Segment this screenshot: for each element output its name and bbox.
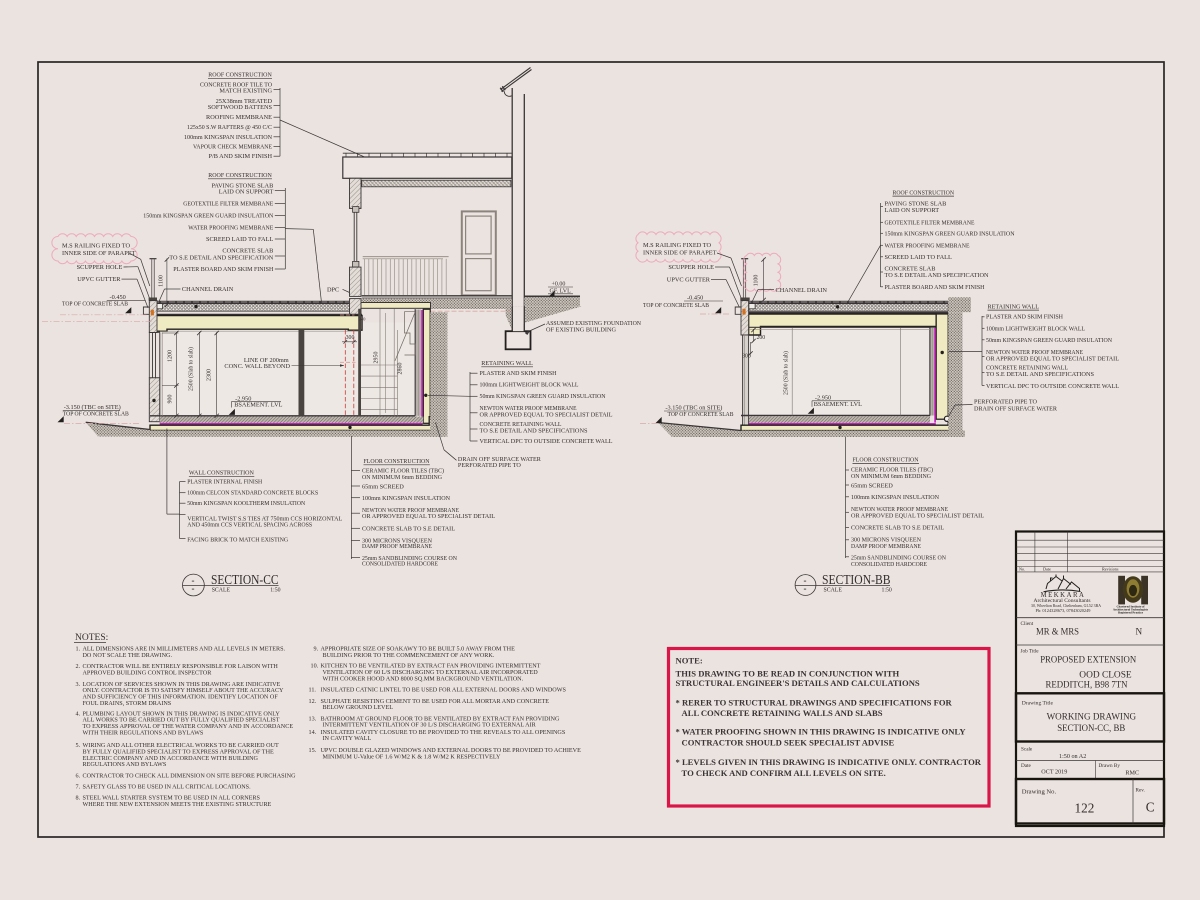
svg-text:ROOF CONSTRUCTION: ROOF CONSTRUCTION <box>893 189 955 196</box>
svg-text:CONCRETE SLAB: CONCRETE SLAB <box>222 248 273 255</box>
svg-text:2860: 2860 <box>398 363 404 375</box>
svg-text:TO CHECK AND CONFIRM ALL LEVEL: TO CHECK AND CONFIRM ALL LEVELS ON SITE. <box>682 768 886 778</box>
svg-text:Drawing No.: Drawing No. <box>1022 789 1057 796</box>
svg-text:RETAINING WALL: RETAINING WALL <box>481 360 533 367</box>
svg-text:1200: 1200 <box>168 350 174 362</box>
svg-text:100mm CELCON STANDARD CONCRETE: 100mm CELCON STANDARD CONCRETE BLOCKS <box>187 490 318 497</box>
svg-text:BUILDING PRIOR TO THE COMMENCE: BUILDING PRIOR TO THE COMMENCEMENT OF AN… <box>323 653 495 659</box>
svg-text:WALL CONSTRUCTION: WALL CONSTRUCTION <box>189 470 254 477</box>
svg-text:MEKKARA: MEKKARA <box>1041 592 1086 599</box>
svg-text:CONTRACTOR WILL BE ENTIRELY RE: CONTRACTOR WILL BE ENTIRELY RESPONSIBLE … <box>83 664 279 670</box>
svg-text:APPROVED BUILDING CONTROL INSP: APPROVED BUILDING CONTROL INSPECTOR <box>83 671 213 677</box>
svg-text:1:50: 1:50 <box>270 588 280 594</box>
svg-text:SAFETY GLASS TO BE USED IN ALL: SAFETY GLASS TO BE USED IN ALL CRITICAL … <box>83 784 252 790</box>
svg-text:OOD CLOSE: OOD CLOSE <box>1079 671 1132 681</box>
svg-text:CONCRETE SLAB TO S.E DETAIL: CONCRETE SLAB TO S.E DETAIL <box>851 525 944 532</box>
svg-text:GEOTEXTILE FILTER MEMBRANE: GEOTEXTILE FILTER MEMBRANE <box>885 219 975 226</box>
svg-text:TOP OF CONCRETE SLAB: TOP OF CONCRETE SLAB <box>63 410 129 417</box>
svg-text:2950: 2950 <box>374 352 380 364</box>
svg-text:RETAINING WALL: RETAINING WALL <box>988 303 1040 310</box>
svg-text:100mm LIGHTWEIGHT BLOCK WALL: 100mm LIGHTWEIGHT BLOCK WALL <box>986 325 1085 332</box>
svg-text:7.: 7. <box>76 784 81 790</box>
svg-text:100mm KINGSPAN INSULATION: 100mm KINGSPAN INSULATION <box>184 134 272 141</box>
svg-text:PLASTER AND SKIM FINISH: PLASTER AND SKIM FINISH <box>480 370 557 377</box>
svg-text:M.S RAILING FIXED TO: M.S RAILING FIXED TO <box>62 243 130 250</box>
svg-text:ON MINIMUM 6mm BEDDING: ON MINIMUM 6mm BEDDING <box>851 473 931 480</box>
svg-text:CONCRETE SLAB TO S.E DETAIL: CONCRETE SLAB TO S.E DETAIL <box>362 525 455 532</box>
svg-text:SCREED LAID TO FALL: SCREED LAID TO FALL <box>885 254 952 261</box>
svg-text:No.: No. <box>1019 566 1025 571</box>
svg-text:VENTILATION OF 60 L/S DISCHA: VENTILATION OF 60 L/S DISCHARGING TO EXT… <box>323 670 539 676</box>
svg-text:PLASTER BOARD AND SKIM FINISH: PLASTER BOARD AND SKIM FINISH <box>885 284 985 291</box>
svg-text:FLOOR CONSTRUCTION: FLOOR CONSTRUCTION <box>364 458 430 465</box>
svg-text:OR APPROVED EQUAL TO SPECIALIS: OR APPROVED EQUAL TO SPECIALIST DETAIL <box>851 513 984 520</box>
svg-text:CONTRACTOR TO CHECK ALL DIMENS: CONTRACTOR TO CHECK ALL DIMENSION ON SIT… <box>83 773 297 779</box>
svg-text:STEEL WALL STARTER SYSTEM TO B: STEEL WALL STARTER SYSTEM TO BE USED IN … <box>83 795 261 801</box>
svg-text:LAID ON SUPPORT: LAID ON SUPPORT <box>219 189 274 196</box>
svg-text:11.: 11. <box>309 687 317 693</box>
svg-text:900: 900 <box>168 395 174 404</box>
svg-text:BSAEMENT. LVL: BSAEMENT. LVL <box>234 402 282 409</box>
svg-text:GEOTEXTILE FILTER MEMBRANE: GEOTEXTILE FILTER MEMBRANE <box>183 201 273 208</box>
svg-text:ROOF CONSTRUCTION: ROOF CONSTRUCTION <box>208 72 272 79</box>
svg-text:AND 450mm CCS VERTICAL SPACIN: AND 450mm CCS VERTICAL SPACING ACROSS <box>187 522 312 529</box>
svg-text:1:50: 1:50 <box>882 588 892 594</box>
svg-text:SCUPPER HOLE: SCUPPER HOLE <box>668 264 714 271</box>
svg-text:5.: 5. <box>76 743 81 749</box>
svg-text:VAPOUR CHECK MEMBRANE: VAPOUR CHECK MEMBRANE <box>193 144 272 151</box>
svg-text:WATER PROOFING MEMBRANE: WATER PROOFING MEMBRANE <box>188 225 273 232</box>
svg-text:100mm KINGSPAN INSULATION: 100mm KINGSPAN INSULATION <box>851 494 939 501</box>
svg-text:DO NOT SCALE THE DRAWING.: DO NOT SCALE THE DRAWING. <box>83 653 173 659</box>
svg-text:TO EXPRESS APPROVAL OF THE WAT: TO EXPRESS APPROVAL OF THE WATER COMPANY… <box>83 724 294 730</box>
svg-text:6.: 6. <box>76 773 81 779</box>
svg-text:-: - <box>192 584 195 594</box>
svg-text:50mm KINGSPAN GREEN GUARD INSU: 50mm KINGSPAN GREEN GUARD INSULATION <box>480 393 606 400</box>
svg-text:-: - <box>804 584 807 594</box>
svg-text:Revisions: Revisions <box>1102 566 1119 571</box>
svg-text:1.: 1. <box>76 647 81 653</box>
svg-text:FACING BRICK TO MATCH EXISTING: FACING BRICK TO MATCH EXISTING <box>187 536 288 543</box>
svg-text:UPVC DOUBLE GLAZED WINDOWS AND: UPVC DOUBLE GLAZED WINDOWS AND EXTERNAL … <box>321 748 582 754</box>
svg-text:DAMP PROOF MEMBRANE: DAMP PROOF MEMBRANE <box>362 543 432 550</box>
svg-text:200: 200 <box>757 335 766 341</box>
svg-text:TOP OF CONCRETE SLAB: TOP OF CONCRETE SLAB <box>668 411 734 418</box>
svg-text:Date: Date <box>1021 763 1031 769</box>
svg-text:SOFTWOOD BATTENS: SOFTWOOD BATTENS <box>208 104 273 111</box>
svg-text:TO S.E DETAIL AND SPECIFICATIO: TO S.E DETAIL AND SPECIFICATION <box>885 272 989 279</box>
svg-text:9.: 9. <box>314 647 319 653</box>
svg-text:ROOFING MEMBRANE: ROOFING MEMBRANE <box>206 114 272 121</box>
svg-text:REDDITCH, B98 7TN: REDDITCH, B98 7TN <box>1046 681 1128 691</box>
svg-text:M.S RAILING FIXED TO: M.S RAILING FIXED TO <box>643 242 711 249</box>
svg-text:* LEVELS GIVEN IN THIS DRAWING: * LEVELS GIVEN IN THIS DRAWING IS INDICA… <box>676 757 982 767</box>
svg-text:SECTION-CC: SECTION-CC <box>211 572 279 587</box>
svg-text:WIRING AND ALL OTHER ELECTRICA: WIRING AND ALL OTHER ELECTRICAL WORKS TO… <box>83 743 279 749</box>
svg-text:N: N <box>1136 627 1143 637</box>
svg-text:125x50 S.W RAFTERS @ 450 C/C: 125x50 S.W RAFTERS @ 450 C/C <box>187 124 272 131</box>
svg-text:FLOOR CONSTRUCTION: FLOOR CONSTRUCTION <box>853 457 919 464</box>
svg-text:65mm SCREED: 65mm SCREED <box>362 483 404 490</box>
svg-text:INTERMITTENT VENTILATION OF 3: INTERMITTENT VENTILATION OF 30 L/S DISCH… <box>323 723 537 729</box>
svg-text:BATHROOM AT GROUND FLOOR TO BE: BATHROOM AT GROUND FLOOR TO BE VENTILATE… <box>321 716 560 722</box>
svg-text:MATCH EXISTING: MATCH EXISTING <box>219 87 272 94</box>
svg-text:* WATER PROOFING SHOWN IN THIS: * WATER PROOFING SHOWN IN THIS DRAWING I… <box>676 727 967 737</box>
svg-text:ROOF CONSTRUCTION: ROOF CONSTRUCTION <box>208 172 272 179</box>
svg-text:Drawing Title: Drawing Title <box>1022 700 1054 706</box>
svg-text:Client: Client <box>1021 621 1034 627</box>
svg-text:CONC. WALL BEYOND: CONC. WALL BEYOND <box>224 363 290 370</box>
svg-text:SCREED LAID TO FALL: SCREED LAID TO FALL <box>206 236 273 243</box>
svg-text:ALL WORKS TO BE CARRIED OUT B: ALL WORKS TO BE CARRIED OUT BY FULLY QUA… <box>83 717 280 723</box>
svg-text:WITH COOKER HOOD AND 8000 SQ.M: WITH COOKER HOOD AND 8000 SQ.MM BACKGROU… <box>323 676 524 682</box>
svg-text:APPROPRIATE SIZE OF SOAKAWY TO: APPROPRIATE SIZE OF SOAKAWY TO BE BUILT … <box>321 647 516 653</box>
svg-text:50mm KINGSPAN KOOLTHERM INSULA: 50mm KINGSPAN KOOLTHERM INSULATION <box>187 500 305 507</box>
svg-text:UPVC GUTTER: UPVC GUTTER <box>667 277 711 284</box>
svg-text:OCT 2019: OCT 2019 <box>1041 770 1067 776</box>
svg-text:VERTICAL DPC TO OUTSIDE CONCRE: VERTICAL DPC TO OUTSIDE CONCRETE WALL <box>986 383 1119 390</box>
svg-text:OR APPROVED EQUAL TO SPECIALIS: OR APPROVED EQUAL TO SPECIALIST DETAIL <box>480 412 613 419</box>
svg-text:REGULATIONS AND BYLAWS: REGULATIONS AND BYLAWS <box>83 762 167 768</box>
svg-text:WHERE THE NEW EXTENSION MEETS: WHERE THE NEW EXTENSION MEETS THE EXISTI… <box>83 802 272 808</box>
svg-text:P/B AND SKIM FINISH: P/B AND SKIM FINISH <box>208 153 272 160</box>
svg-text:NOTES:: NOTES: <box>75 633 108 643</box>
svg-text:LAID ON SUPPORT: LAID ON SUPPORT <box>885 207 940 214</box>
svg-text:WATER PROOFING MEMBRANE: WATER PROOFING MEMBRANE <box>885 242 970 249</box>
svg-text:SCALE: SCALE <box>824 588 843 594</box>
svg-text:4.: 4. <box>76 711 81 717</box>
svg-text:PROPOSED EXTENSION: PROPOSED EXTENSION <box>1040 656 1136 666</box>
svg-text:300: 300 <box>742 353 751 359</box>
svg-text:PLASTER INTERNAL FINISH: PLASTER INTERNAL FINISH <box>187 478 262 485</box>
svg-text:Rev.: Rev. <box>1136 788 1145 794</box>
svg-text:SECTION-CC, BB: SECTION-CC, BB <box>1057 724 1125 734</box>
svg-text:SCALE: SCALE <box>212 588 231 594</box>
svg-text:IN CAVITY WALL: IN CAVITY WALL <box>323 736 372 742</box>
svg-text:OF EXISTING BUILDING: OF EXISTING BUILDING <box>546 327 616 334</box>
svg-text:50mm KINGSPAN GREEN GUARD INSU: 50mm KINGSPAN GREEN GUARD INSULATION <box>986 337 1112 344</box>
svg-text:WORKING DRAWING: WORKING DRAWING <box>1047 712 1137 722</box>
svg-text:2.: 2. <box>76 664 81 670</box>
svg-text:INSULATED CAVITY CLOSURE TO B: INSULATED CAVITY CLOSURE TO BE PROVIDED … <box>321 730 566 736</box>
svg-text:Date: Date <box>1043 566 1051 571</box>
svg-text:100mm LIGHTWEIGHT BLOCK WALL: 100mm LIGHTWEIGHT BLOCK WALL <box>480 382 579 389</box>
svg-text:150mm KINGSPAN GREEN GUARD INS: 150mm KINGSPAN GREEN GUARD INSULATION <box>885 230 1015 237</box>
svg-text:C: C <box>1146 800 1155 815</box>
svg-text:* RERER TO STRUCTURAL DRAWINGS: * RERER TO STRUCTURAL DRAWINGS AND SPECI… <box>676 698 953 708</box>
svg-text:100mm KINGSPAN INSULATION: 100mm KINGSPAN INSULATION <box>362 495 450 502</box>
svg-text:Drawn By: Drawn By <box>1099 763 1121 769</box>
svg-text:340: 340 <box>359 317 367 322</box>
svg-text:MR & MRS: MR & MRS <box>1036 627 1079 637</box>
svg-text:DRAIN OFF SURFACE WATER: DRAIN OFF SURFACE WATER <box>974 405 1058 412</box>
svg-text:TO S.E DETAIL AND SPECIFICATIO: TO S.E DETAIL AND SPECIFICATIONS <box>480 427 588 434</box>
svg-text:8.: 8. <box>76 795 81 801</box>
svg-text:12.: 12. <box>309 699 317 705</box>
svg-text:CHANNEL DRAIN: CHANNEL DRAIN <box>776 287 828 294</box>
svg-text:3.: 3. <box>76 682 81 688</box>
svg-text:FOUL DRAINS, STORM DRAINS: FOUL DRAINS, STORM DRAINS <box>83 701 172 707</box>
svg-text:150mm KINGSPAN GREEN GUARD INS: 150mm KINGSPAN GREEN GUARD INSULATION <box>143 213 273 220</box>
svg-text:PLASTER AND SKIM FINISH: PLASTER AND SKIM FINISH <box>986 314 1063 321</box>
svg-text:1:50 on A2: 1:50 on A2 <box>1059 754 1086 760</box>
svg-text:15.: 15. <box>309 748 317 754</box>
svg-text:SCUPPER HOLE: SCUPPER HOLE <box>77 264 123 271</box>
svg-text:CONSOLIDATED HARDCORE: CONSOLIDATED HARDCORE <box>362 560 438 567</box>
svg-text:CONSOLIDATED HARDCORE: CONSOLIDATED HARDCORE <box>851 561 927 568</box>
svg-text:CHANNEL DRAIN: CHANNEL DRAIN <box>182 286 234 293</box>
svg-text:MINIMUM U-Value OF 1.6 W/M2 K: MINIMUM U-Value OF 1.6 W/M2 K & 1.8 W/M2… <box>323 754 501 760</box>
svg-text:UPVC GUTTER: UPVC GUTTER <box>77 276 121 283</box>
svg-text:AND SUFFICIENCY OF THIS INFORM: AND SUFFICIENCY OF THIS INFORMATION. IDE… <box>83 694 279 700</box>
svg-text:BELOW GROUND LEVEL: BELOW GROUND LEVEL <box>323 705 394 711</box>
svg-text:13.: 13. <box>309 716 317 722</box>
svg-text:PLASTER BOARD AND SKIM FINISH: PLASTER BOARD AND SKIM FINISH <box>173 266 273 273</box>
svg-text:Job Title: Job Title <box>1021 648 1040 654</box>
svg-text:WITH THEIR REGULATIONS AND BYL: WITH THEIR REGULATIONS AND BYLAWS <box>83 730 204 736</box>
svg-text:-0.450: -0.450 <box>687 295 703 302</box>
svg-text:14.: 14. <box>309 730 317 736</box>
svg-text:Scale: Scale <box>1021 747 1033 753</box>
svg-text:DAMP PROOF MEMBRANE: DAMP PROOF MEMBRANE <box>851 543 921 550</box>
svg-text:TOP OF CONCRETE SLAB: TOP OF CONCRETE SLAB <box>643 302 709 309</box>
svg-text:INNER SIDE OF PARAPET: INNER SIDE OF PARAPET <box>62 250 136 257</box>
svg-text:INNER SIDE OF PARAPET: INNER SIDE OF PARAPET <box>643 249 717 256</box>
svg-text:BY FULLY QUALIFIED SPECIALIST: BY FULLY QUALIFIED SPECIALIST TO EXPRESS… <box>83 749 274 755</box>
svg-text:STRUCTURAL ENGINEER'S DETAILS: STRUCTURAL ENGINEER'S DETAILS AND CALCUL… <box>676 678 920 688</box>
svg-text:ONLY. CONTRACTOR IS TO SATISFY: ONLY. CONTRACTOR IS TO SATISFY HIMSELF A… <box>83 688 285 694</box>
svg-text:ALL CONCRETE RETAINING WALLS A: ALL CONCRETE RETAINING WALLS AND SLABS <box>682 708 883 718</box>
svg-text:SECTION-BB: SECTION-BB <box>822 572 891 587</box>
svg-text:INSULATED CATNIC LINTEL TO BE: INSULATED CATNIC LINTEL TO BE USED FOR A… <box>321 687 567 693</box>
svg-text:122: 122 <box>1075 801 1095 816</box>
svg-text:2300: 2300 <box>207 369 213 381</box>
svg-text:1100: 1100 <box>159 275 165 287</box>
svg-text:BSAEMENT. LVL: BSAEMENT. LVL <box>814 401 862 408</box>
svg-text:KITCHEN TO BE VENTILATED BY EX: KITCHEN TO BE VENTILATED BY EXTRACT FAN … <box>321 663 541 669</box>
svg-text:OR APPROVED EQUAL TO SPECIALIS: OR APPROVED EQUAL TO SPECIALIST DETAIL <box>362 513 495 520</box>
svg-text:TOP OF CONCRETE SLAB: TOP OF CONCRETE SLAB <box>62 301 128 308</box>
svg-text:65mm SCREED: 65mm SCREED <box>851 482 893 489</box>
svg-text:DPC: DPC <box>327 287 339 294</box>
svg-text:RMC: RMC <box>1125 771 1139 777</box>
svg-text:1100: 1100 <box>754 275 760 287</box>
svg-text:PERFORATED PIPE TO: PERFORATED PIPE TO <box>458 462 521 469</box>
svg-text:THIS DRAWING TO BE READ IN CON: THIS DRAWING TO BE READ IN CONJUNCTION W… <box>676 669 900 679</box>
svg-text:OR APPROVED EQUAL TO SPECIALIS: OR APPROVED EQUAL TO SPECIALIST DETAIL <box>986 355 1119 362</box>
svg-text:+0.00: +0.00 <box>552 282 566 288</box>
svg-text:ON MINIMUM 6mm BEDDING: ON MINIMUM 6mm BEDDING <box>362 474 442 481</box>
svg-text:TO S.E DETAIL AND SPECIFICATIO: TO S.E DETAIL AND SPECIFICATIONS <box>986 371 1094 378</box>
svg-text:CONTRACTOR SHOULD SEEK SPECIAL: CONTRACTOR SHOULD SEEK SPECIALIST ADVISE <box>682 738 895 748</box>
svg-text:2500 (Slab to slab): 2500 (Slab to slab) <box>783 351 790 395</box>
svg-text:ALL DIMENSIONS ARE IN MILLIMET: ALL DIMENSIONS ARE IN MILLIMETERS AND AL… <box>83 647 286 653</box>
svg-text:VERTICAL DPC TO OUTSIDE CONCRE: VERTICAL DPC TO OUTSIDE CONCRETE WALL <box>480 438 613 445</box>
svg-text:Registered Practice: Registered Practice <box>1118 611 1144 615</box>
svg-text:NOTE:: NOTE: <box>676 656 703 666</box>
svg-text:2500 (Slab to slab): 2500 (Slab to slab) <box>188 347 195 391</box>
svg-text:TO S.E DETAIL AND SPECIFICATIO: TO S.E DETAIL AND SPECIFICATION <box>169 255 273 262</box>
svg-text:10.: 10. <box>311 663 319 669</box>
svg-text:SULPHATE RESISTING CEMENT TO B: SULPHATE RESISTING CEMENT TO BE USED FOR… <box>321 699 550 705</box>
